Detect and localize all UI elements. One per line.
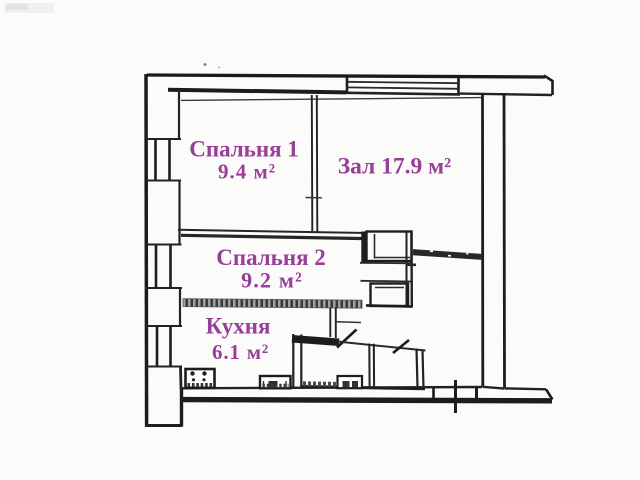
svg-text:Кухня: Кухня xyxy=(206,314,271,339)
svg-text:6.1 м²: 6.1 м² xyxy=(212,340,269,364)
svg-text:9.4 м²: 9.4 м² xyxy=(218,160,276,184)
svg-text:9.2 м²: 9.2 м² xyxy=(241,268,303,293)
svg-text:Зал 17.9 м²: Зал 17.9 м² xyxy=(338,154,451,180)
svg-text:Спальня 2: Спальня 2 xyxy=(216,245,326,270)
svg-text:Спальня 1: Спальня 1 xyxy=(189,137,299,162)
